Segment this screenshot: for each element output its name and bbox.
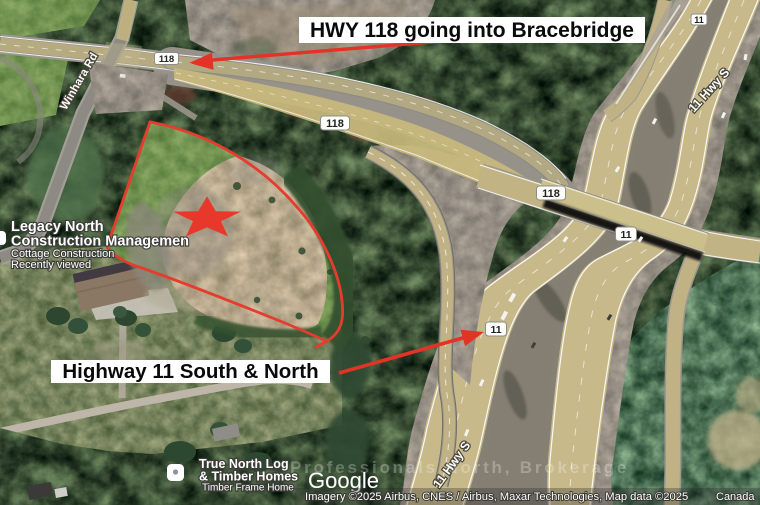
svg-text:Imagery ©2025 Airbus, CNES / A: Imagery ©2025 Airbus, CNES / Airbus, Max… <box>305 491 688 503</box>
svg-text:& Timber Homes: & Timber Homes <box>199 470 298 484</box>
svg-text:Highway 11 South & North: Highway 11 South & North <box>62 360 318 383</box>
svg-text:Canada: Canada <box>716 491 755 503</box>
svg-text:11: 11 <box>490 324 501 336</box>
svg-text:Recently viewed: Recently viewed <box>11 259 91 271</box>
svg-text:118: 118 <box>326 118 344 130</box>
svg-text:11: 11 <box>620 229 631 241</box>
svg-text:118: 118 <box>542 188 560 200</box>
svg-text:Timber Frame Home: Timber Frame Home <box>202 483 294 494</box>
svg-text:11: 11 <box>694 15 704 25</box>
svg-text:118: 118 <box>159 54 174 65</box>
svg-text:HWY 118 going into Bracebridge: HWY 118 going into Bracebridge <box>310 19 634 42</box>
